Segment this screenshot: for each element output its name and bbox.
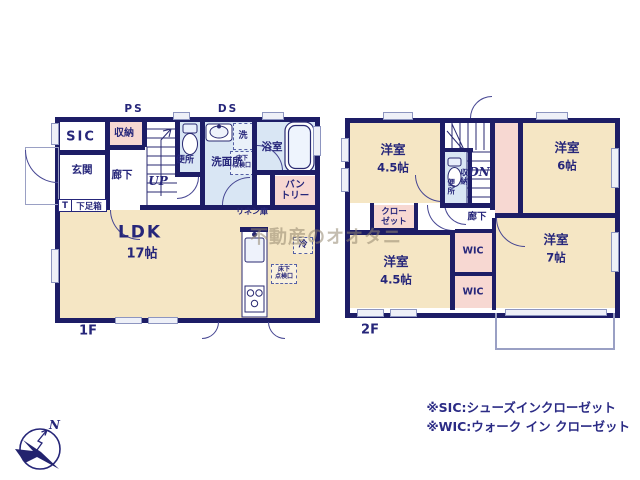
window: [611, 148, 619, 188]
room-label-toilet1: 便所: [176, 157, 194, 166]
floor1-name: 1F: [79, 325, 97, 338]
room-label-storage2: 収納: [460, 169, 468, 186]
wall: [440, 118, 445, 205]
room-label-pantry: バン: [285, 180, 304, 190]
wall: [252, 117, 257, 207]
window: [341, 168, 349, 192]
wall: [105, 117, 110, 210]
toilet-fixture-1f: [183, 124, 198, 155]
window: [148, 317, 178, 324]
label-linen: リネン庫: [236, 208, 268, 216]
room-label-ldk-size: 17帖: [126, 248, 157, 261]
room-label-se-size: 7帖: [546, 252, 566, 264]
wall: [440, 203, 495, 208]
window: [115, 317, 142, 324]
room-label-wic-lower: WIC: [463, 287, 484, 297]
legend-notes: ※SIC:シューズインクローゼット ※WIC:ウォーク イン クローゼット: [427, 398, 630, 437]
window: [390, 309, 417, 317]
room-label-sw: 洋室: [383, 256, 408, 269]
compass-north-label: N: [48, 418, 61, 432]
room-label-bath: 浴室: [262, 142, 283, 153]
washbasin-fixture: [206, 124, 232, 141]
room-label-entrance: 玄関: [72, 165, 93, 176]
wall: [455, 229, 492, 233]
underfloor-access: 床下点検口: [271, 264, 297, 284]
room-label-se: 洋室: [543, 234, 568, 247]
room-label-storage: 収納: [114, 129, 134, 139]
wall: [142, 117, 147, 147]
wall: [455, 272, 492, 276]
wall: [200, 117, 205, 207]
window: [173, 112, 190, 120]
wall: [257, 170, 315, 175]
compass-icon: N: [10, 416, 70, 478]
stairs-1f: [147, 129, 177, 205]
room-label-ldk: LDK: [118, 225, 162, 242]
room-label-closet: クロー: [381, 208, 407, 217]
room-label-toilet2: 便所: [447, 179, 455, 196]
room-label-sw-size: 4.5帖: [380, 274, 412, 286]
bathtub-fixture: [285, 122, 314, 172]
window: [341, 138, 349, 162]
floor2-name: 2F: [361, 324, 379, 337]
balcony-sliding-window: [505, 309, 607, 316]
room-label-ne-size: 6帖: [557, 160, 577, 172]
wall: [105, 145, 145, 150]
wall: [175, 117, 180, 175]
wall: [518, 118, 523, 218]
label-ds: DS: [218, 104, 238, 115]
note-sic: ※SIC:シューズインクローゼット: [427, 398, 630, 417]
wall: [490, 118, 495, 210]
room-label-hall2: 廊下: [467, 212, 486, 222]
watermark: 不動産のオオタニ: [250, 223, 402, 249]
wall: [495, 213, 615, 218]
room-label-hall: 廊下: [112, 170, 133, 181]
wall: [60, 150, 105, 155]
window: [51, 249, 59, 283]
shoe-box: 下足箱: [71, 199, 107, 212]
room-label-wic-upper: WIC: [463, 246, 484, 256]
label-ps: PS: [124, 104, 143, 115]
window: [536, 112, 568, 120]
wall: [492, 218, 496, 310]
wall: [175, 172, 205, 177]
room-label-ne: 洋室: [554, 142, 579, 155]
window: [357, 309, 384, 317]
room-label-pantry: トリー: [281, 191, 310, 201]
window: [383, 112, 413, 120]
wall: [140, 205, 315, 210]
washing-machine-space: 洗: [233, 123, 253, 150]
wall: [450, 230, 455, 310]
window: [51, 123, 59, 145]
label-dn: DN: [468, 166, 489, 178]
room-label-washroom: 洗面所: [211, 157, 243, 168]
label-up: UP: [148, 175, 168, 187]
window: [313, 126, 321, 156]
note-wic: ※WIC:ウォーク イン クローゼット: [427, 417, 630, 436]
wall: [270, 175, 275, 207]
window: [262, 112, 284, 120]
window: [611, 232, 619, 272]
floorplan-canvas: 洗 床下点検口 床下点検口 冷 T 下足箱 SIC 収納 PS DS 玄関 廊下…: [0, 0, 640, 480]
room-label-nw: 洋室: [380, 144, 405, 157]
step-box: T: [58, 199, 72, 212]
room-label-nw-size: 4.5帖: [377, 162, 409, 174]
room-label-sic: SIC: [66, 131, 96, 144]
